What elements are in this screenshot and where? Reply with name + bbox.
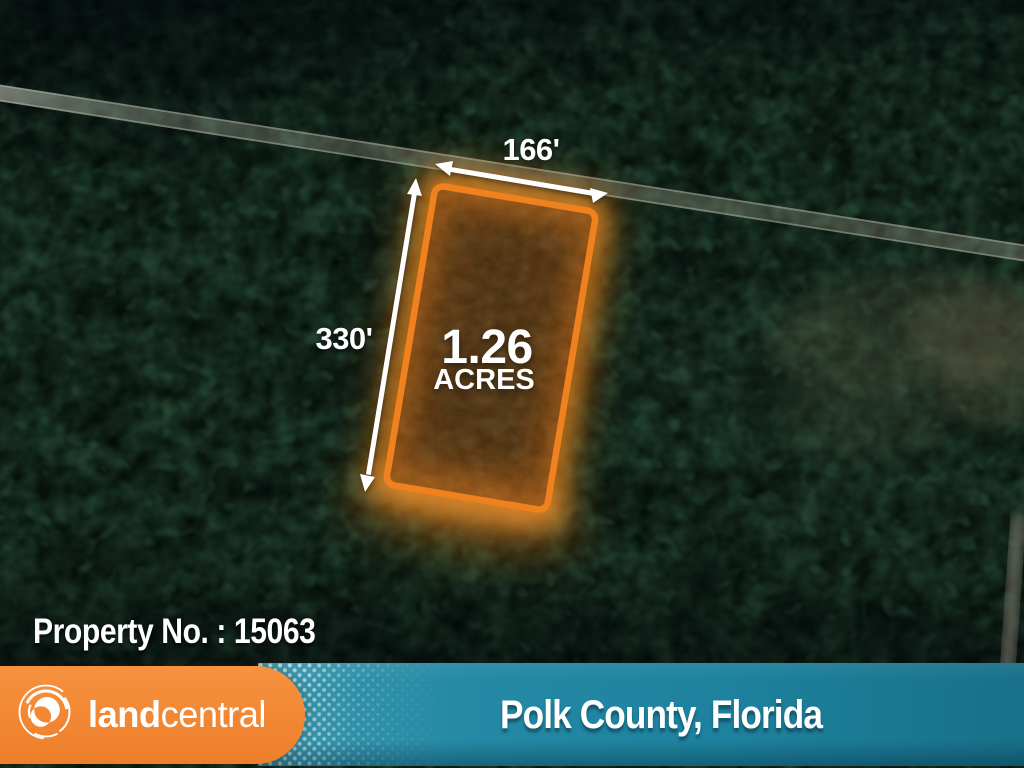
svg-text:ACRES: ACRES [433,364,535,396]
svg-text:330': 330' [315,321,372,356]
svg-text:166': 166' [502,132,559,167]
